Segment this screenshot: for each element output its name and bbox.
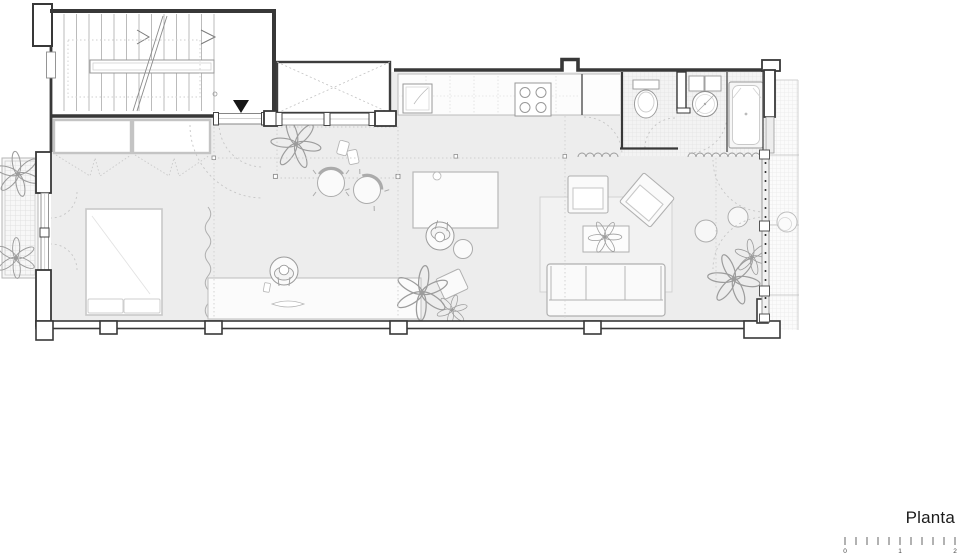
scale-label-1: 1 bbox=[898, 548, 902, 555]
person-at-desk bbox=[270, 257, 298, 286]
window-frame bbox=[47, 52, 56, 78]
kitchen-closet bbox=[582, 74, 622, 115]
bathroom-niche bbox=[689, 76, 721, 91]
north-wall bbox=[394, 60, 764, 71]
desk bbox=[208, 278, 421, 319]
bathtub-shower bbox=[729, 82, 763, 148]
stool bbox=[454, 240, 473, 259]
pillow bbox=[124, 299, 160, 313]
wall-stub-top-left bbox=[33, 4, 52, 46]
scale-label-0: 0 bbox=[843, 548, 847, 555]
sink bbox=[403, 84, 432, 113]
entry-door bbox=[214, 113, 267, 126]
armchair bbox=[568, 176, 608, 213]
patio-glazing bbox=[276, 113, 375, 126]
plan-title: Planta bbox=[755, 508, 955, 528]
scale-label-2: 2 bbox=[953, 548, 957, 555]
scale-bar: 0 1 2 bbox=[843, 537, 957, 555]
staircase bbox=[53, 12, 273, 114]
floor-plan-canvas: 0 1 2 bbox=[0, 0, 960, 556]
hob bbox=[515, 83, 551, 116]
west-wall-lower bbox=[36, 270, 51, 326]
terrace-pot bbox=[777, 212, 797, 232]
pouf bbox=[695, 220, 717, 242]
dining-table bbox=[413, 172, 498, 228]
stair-handrail bbox=[90, 60, 214, 73]
balcony-door bbox=[40, 193, 49, 270]
kitchen bbox=[398, 74, 622, 116]
west-wall-upper bbox=[36, 152, 51, 193]
toilet bbox=[633, 80, 659, 118]
washbasin bbox=[693, 92, 718, 117]
pouf bbox=[728, 207, 748, 227]
pillow bbox=[88, 299, 123, 313]
